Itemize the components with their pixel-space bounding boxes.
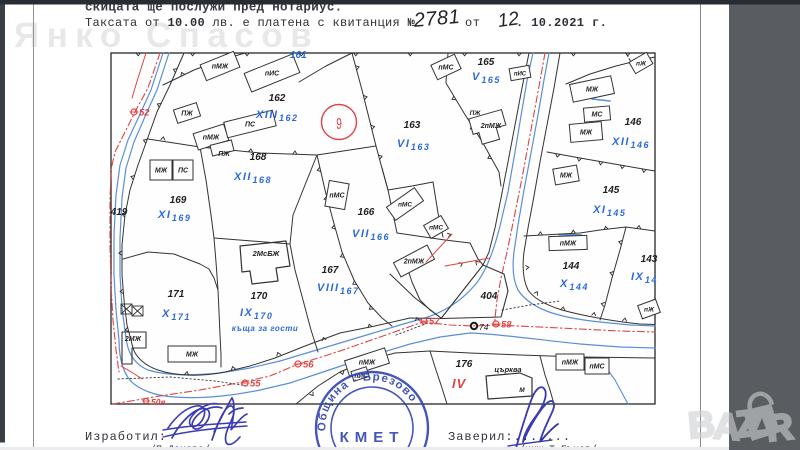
svg-text:146: 146 (625, 117, 642, 128)
svg-text:162: 162 (269, 93, 286, 104)
svg-text:2781: 2781 (412, 6, 461, 32)
svg-text:167: 167 (322, 265, 339, 276)
svg-text:пМЖ: пМЖ (359, 359, 376, 366)
svg-text:пМЖ: пМЖ (203, 134, 220, 141)
svg-text:пЖ: пЖ (644, 306, 655, 313)
svg-text:ПЖ: ПЖ (181, 110, 193, 117)
svg-text:ПС: ПС (245, 121, 256, 128)
svg-text:пМС: пМС (589, 363, 605, 370)
svg-text:КМЕТ: КМЕТ (340, 429, 405, 446)
svg-text:170: 170 (251, 291, 268, 302)
svg-text:МЖ: МЖ (580, 129, 593, 136)
svg-text:МЖ: МЖ (560, 172, 573, 179)
svg-text:ПЖ: ПЖ (218, 151, 230, 158)
svg-text:пИС: пИС (514, 71, 527, 77)
svg-text:166: 166 (358, 207, 375, 218)
svg-text:404: 404 (480, 291, 498, 302)
svg-text:М: М (519, 387, 525, 394)
svg-text:50в: 50в (151, 397, 166, 407)
svg-text:57: 57 (429, 317, 440, 328)
svg-text:165: 165 (478, 57, 495, 68)
svg-text:ПС: ПС (178, 167, 189, 174)
svg-text:МЖ: МЖ (155, 167, 168, 174)
svg-text:Таксата от 10.00 лв. е платена: Таксата от 10.00 лв. е платена с квитанц… (85, 16, 416, 30)
svg-text:IV: IV (452, 376, 467, 391)
svg-text:пМЖ: пМЖ (560, 240, 577, 247)
svg-text:пИС: пИС (265, 70, 280, 77)
svg-text:пМС: пМС (438, 64, 454, 71)
svg-text:2пМЖ: 2пМЖ (403, 258, 425, 265)
svg-text:МЖ: МЖ (186, 351, 199, 358)
svg-text:9: 9 (336, 116, 342, 135)
svg-text:176: 176 (456, 359, 473, 370)
svg-text:пМЖ: пМЖ (562, 359, 579, 366)
svg-text:пМЖ: пМЖ (212, 63, 229, 70)
svg-text:169: 169 (170, 195, 187, 206)
svg-text:пМС: пМС (429, 224, 443, 231)
svg-text:пМС: пМС (329, 192, 345, 199)
svg-text:2МЖ: 2МЖ (124, 336, 142, 343)
svg-text:2МсБЖ: 2МсБЖ (252, 249, 281, 258)
svg-text:419: 419 (110, 207, 128, 218)
svg-text:от: от (465, 16, 480, 30)
svg-text:55: 55 (250, 379, 261, 390)
svg-text:163: 163 (404, 120, 421, 131)
svg-text:58: 58 (501, 320, 512, 331)
svg-text:МС: МС (592, 111, 604, 118)
svg-text:74: 74 (479, 322, 489, 332)
svg-text:52: 52 (139, 108, 150, 119)
svg-text:Изработил:: Изработил: (85, 430, 167, 444)
svg-text:Заверил:.......: Заверил:....... (448, 430, 571, 444)
svg-text:църква: църква (494, 365, 521, 374)
svg-text:145: 145 (603, 185, 620, 196)
svg-text:МЖ: МЖ (586, 86, 599, 93)
svg-text:. 10.2021 г.: . 10.2021 г. (516, 16, 607, 30)
svg-text:161: 161 (290, 50, 307, 61)
svg-text:пЖ: пЖ (636, 60, 647, 67)
svg-text:ПЖ: ПЖ (470, 110, 482, 117)
svg-text:144: 144 (563, 261, 580, 272)
svg-text:пМС: пМС (398, 201, 412, 208)
svg-text:къща за гости: къща за гости (232, 324, 299, 333)
svg-text:143: 143 (641, 254, 658, 265)
svg-text:2пМЖ: 2пМЖ (480, 123, 502, 130)
svg-text:171: 171 (168, 289, 185, 300)
svg-text:168: 168 (250, 152, 267, 163)
svg-text:12: 12 (496, 8, 520, 32)
svg-text:56: 56 (303, 360, 314, 371)
